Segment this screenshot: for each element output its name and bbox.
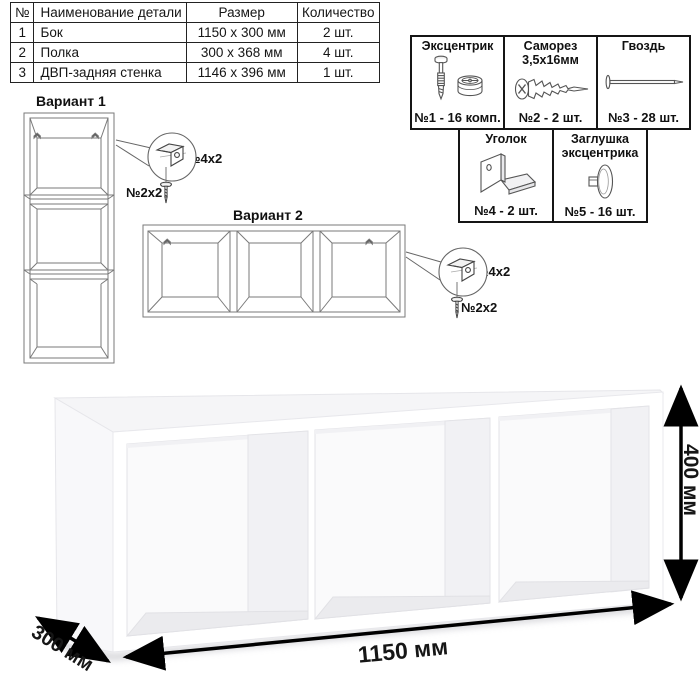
table-row: 1 Бок 1150 x 300 мм 2 шт.: [11, 23, 380, 43]
left-side-panel: [55, 398, 113, 652]
cam-cover-icon: [581, 160, 619, 204]
table-row: 3 ДВП-задняя стенка 1146 x 396 мм 1 шт.: [11, 63, 380, 83]
cell-qty: 2 шт.: [297, 23, 379, 43]
cell-num: 2: [11, 43, 34, 63]
screw-icon: [452, 297, 463, 318]
cell-qty: 4 шт.: [297, 43, 379, 63]
col-header-name: Наименование детали: [34, 3, 186, 23]
cell-qty: 1 шт.: [297, 63, 379, 83]
screw-icon: [161, 182, 172, 203]
compartment: [499, 406, 649, 602]
variant2-callout: [406, 248, 487, 318]
hardware-item-title: Гвоздь: [622, 40, 666, 54]
cell-size: 1150 x 300 мм: [186, 23, 297, 43]
nail-icon: [603, 54, 685, 111]
installed-bracket-icon: [92, 133, 98, 138]
hardware-item-cam-cover: Заглушка эксцентрика №5 - 16 шт.: [552, 128, 648, 223]
compartment: [127, 431, 308, 636]
variant-diagrams: [0, 85, 540, 390]
compartment: [315, 418, 490, 619]
hardware-item-title: Заглушка эксцентрика: [562, 133, 639, 160]
hardware-item-caption: №5 - 16 шт.: [564, 204, 635, 219]
cell-size: 1146 x 396 мм: [186, 63, 297, 83]
parts-table: № Наименование детали Размер Количество …: [10, 2, 380, 83]
col-header-num: №: [11, 3, 34, 23]
variant2-drawing: [143, 225, 405, 317]
col-header-qty: Количество: [297, 3, 379, 23]
hardware-item-title: Саморез 3,5х16мм: [522, 40, 579, 67]
hardware-item-caption: №3 - 28 шт.: [608, 110, 679, 125]
cell-name: ДВП-задняя стенка: [34, 63, 186, 83]
height-dimension-label: 400 мм: [678, 444, 700, 516]
cell-num: 1: [11, 23, 34, 43]
assembly-instruction-sheet: № Наименование детали Размер Количество …: [0, 0, 700, 690]
cell-num: 3: [11, 63, 34, 83]
variant1-drawing: [24, 113, 114, 363]
hardware-item-nail: Гвоздь №3 - 28 шт.: [596, 35, 691, 130]
table-row: 2 Полка 300 x 368 мм 4 шт.: [11, 43, 380, 63]
hardware-item-title: Эксцентрик: [422, 40, 494, 54]
cell-name: Бок: [34, 23, 186, 43]
cell-name: Полка: [34, 43, 186, 63]
shelf-3d-render: [0, 380, 700, 690]
cell-size: 300 x 368 мм: [186, 43, 297, 63]
col-header-size: Размер: [186, 3, 297, 23]
table-header-row: № Наименование детали Размер Количество: [11, 3, 380, 23]
variant1-callout: [116, 133, 196, 203]
